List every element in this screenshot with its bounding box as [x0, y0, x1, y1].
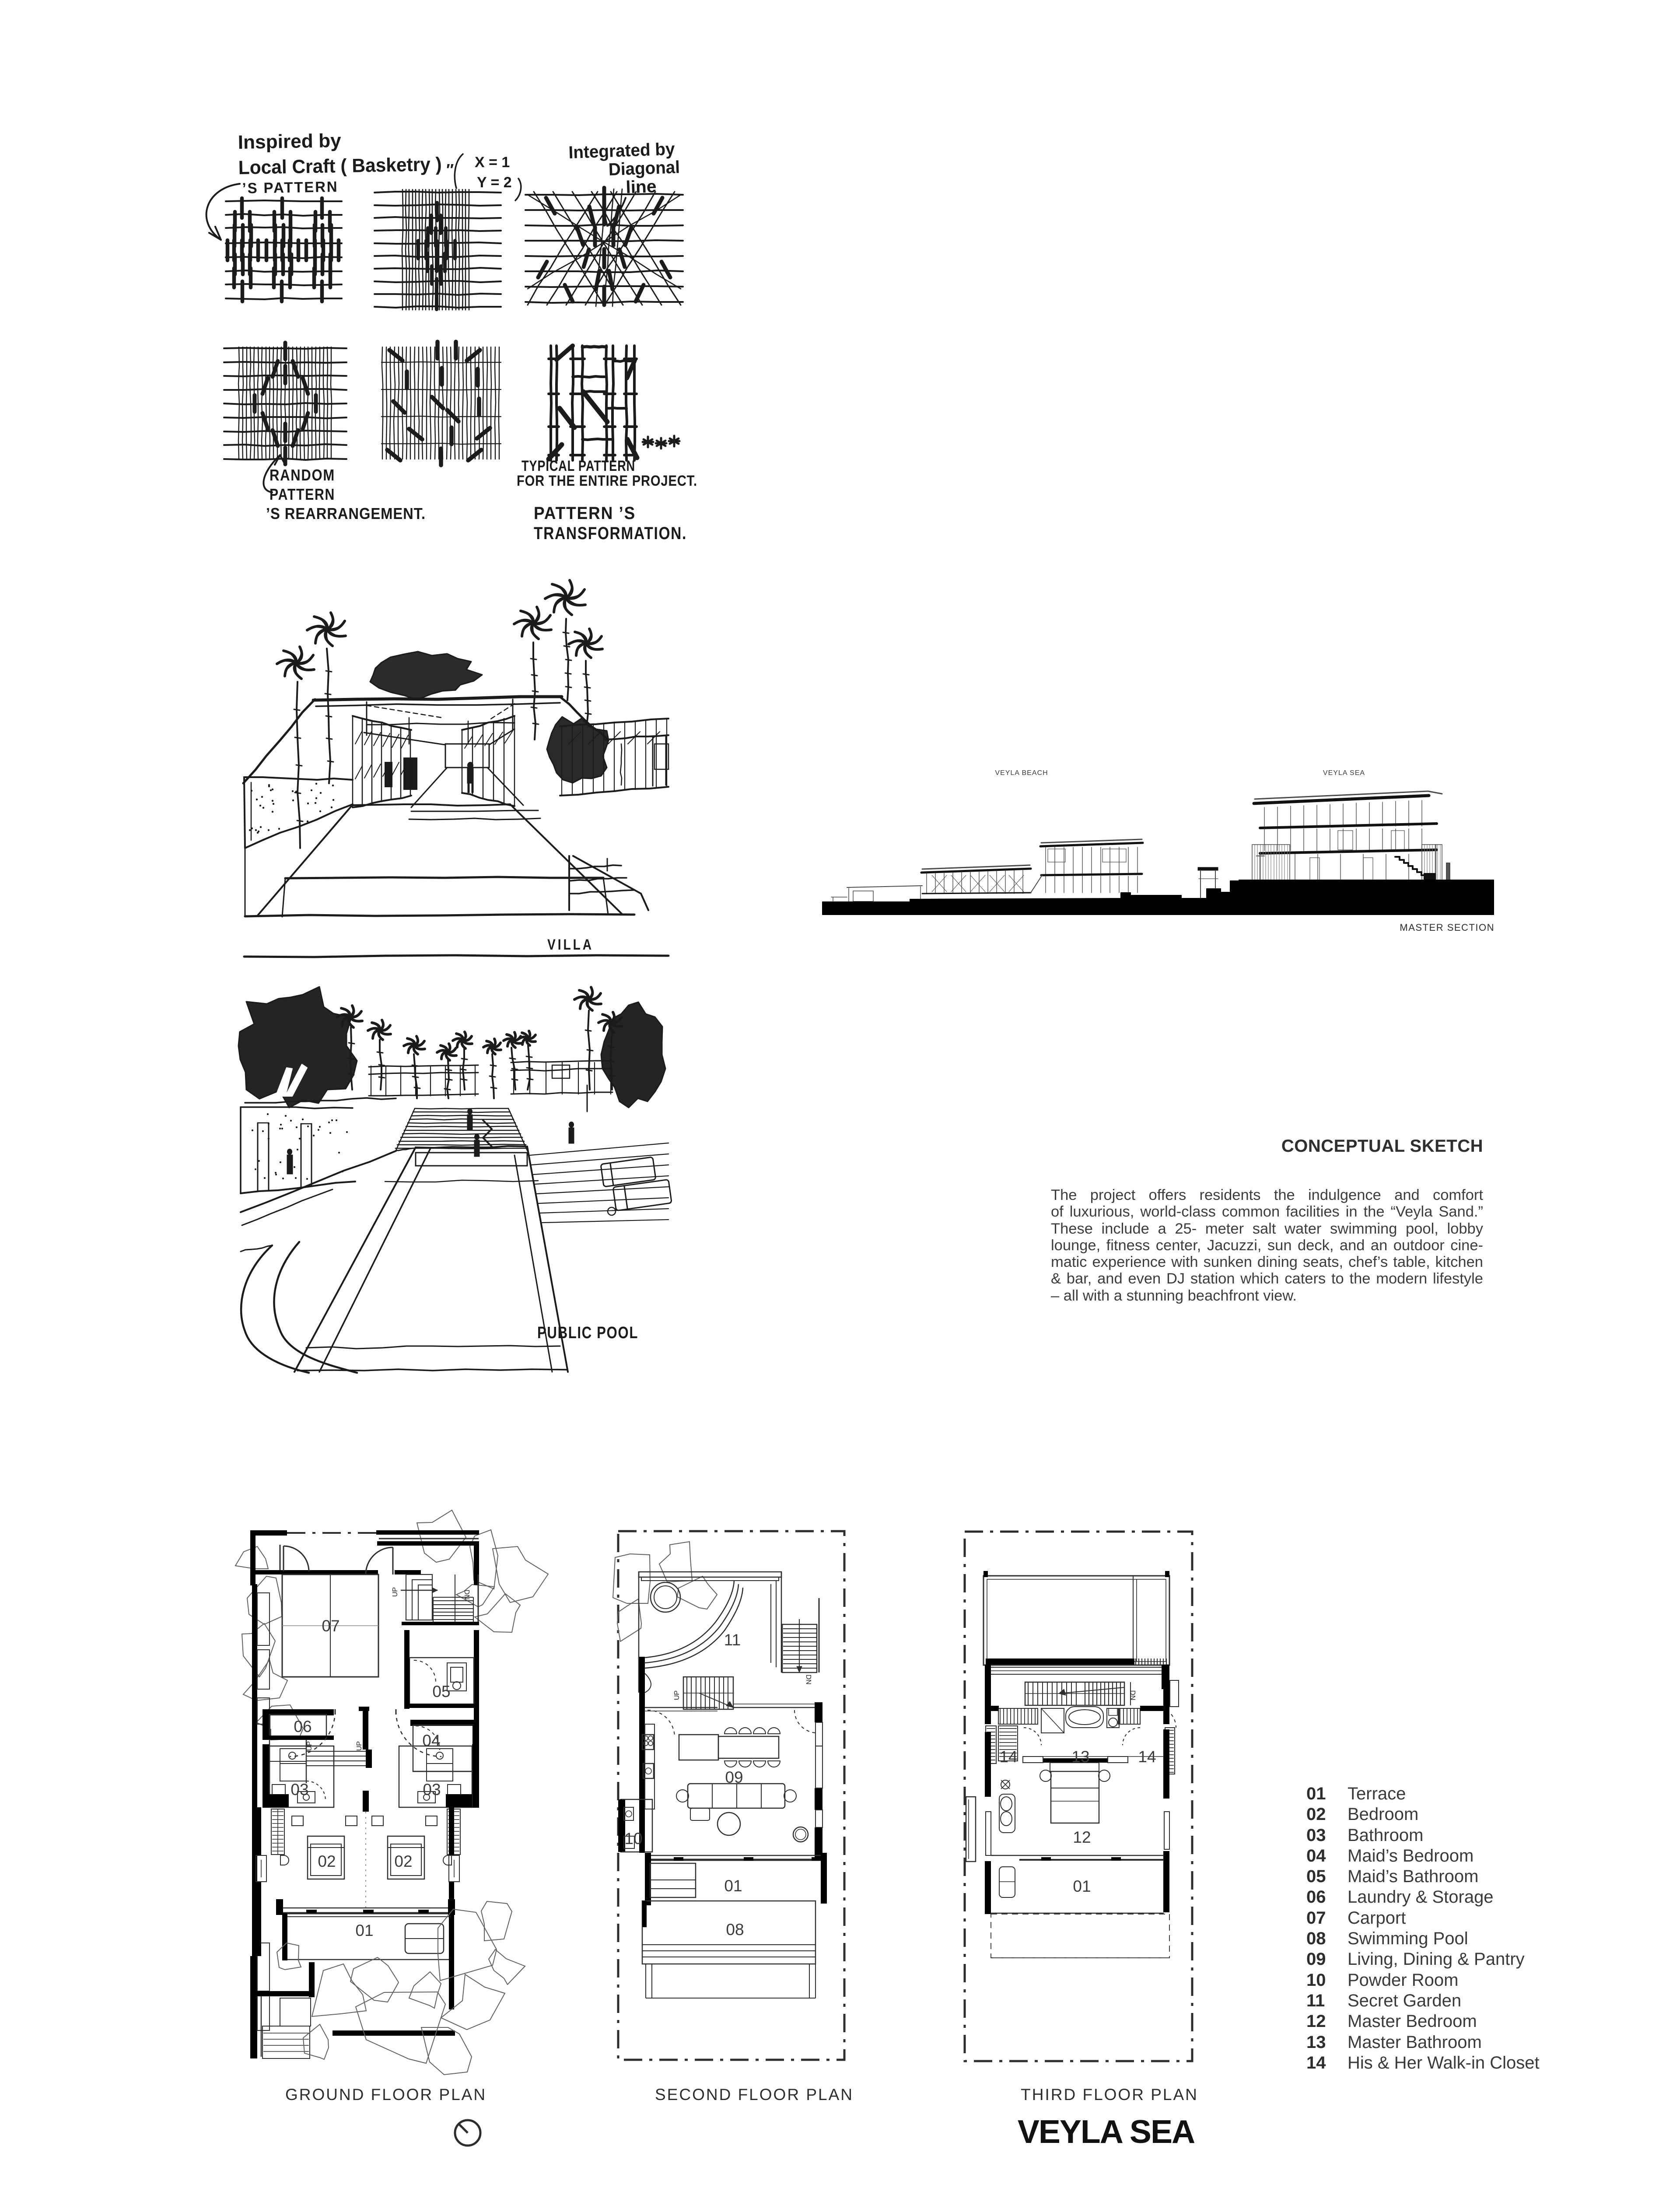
svg-text:10: 10	[624, 1830, 642, 1848]
svg-text:TRANSFORMATION.: TRANSFORMATION.	[534, 524, 687, 543]
svg-text:08: 08	[726, 1921, 744, 1939]
svg-text:DN: DN	[805, 1674, 812, 1684]
svg-text:01: 01	[724, 1877, 742, 1895]
svg-text:02: 02	[394, 1852, 412, 1870]
svg-text:14: 14	[999, 1748, 1017, 1766]
svg-text:VEYLA BEACH: VEYLA BEACH	[995, 769, 1048, 777]
svg-text:PATTERN: PATTERN	[269, 485, 335, 503]
svg-text:07: 07	[322, 1617, 339, 1635]
svg-text:05: 05	[432, 1683, 450, 1701]
svg-text:VILLA: VILLA	[547, 936, 594, 953]
svg-text:13: 13	[1071, 1748, 1089, 1766]
svg-text:Diagonal: Diagonal	[608, 158, 680, 179]
svg-text:line: line	[626, 177, 657, 197]
svg-text:06: 06	[294, 1718, 311, 1736]
svg-text:’S PATTERN: ’S PATTERN	[242, 179, 339, 197]
svg-text:TYPICAL PATTERN: TYPICAL PATTERN	[521, 458, 635, 474]
svg-text:PATTERN ’S: PATTERN ’S	[534, 504, 636, 523]
svg-text:RANDOM: RANDOM	[269, 466, 335, 484]
svg-text:FOR THE ENTIRE PROJECT.: FOR THE ENTIRE PROJECT.	[517, 473, 697, 489]
svg-text:01: 01	[1073, 1877, 1091, 1895]
svg-text:Y = 2: Y = 2	[477, 174, 512, 191]
svg-text:’S REARRANGEMENT.: ’S REARRANGEMENT.	[266, 505, 426, 522]
svg-text:UP: UP	[356, 1741, 363, 1751]
svg-text:′′: ′′	[446, 161, 454, 179]
svg-text:DN: DN	[1129, 1690, 1136, 1700]
svg-text:DN: DN	[463, 1589, 470, 1599]
svg-text:12: 12	[1073, 1828, 1091, 1846]
svg-text:UP: UP	[392, 1587, 399, 1597]
svg-text:Inspired by: Inspired by	[238, 130, 341, 153]
svg-text:14: 14	[1138, 1748, 1156, 1766]
svg-text:MASTER SECTION: MASTER SECTION	[1400, 922, 1494, 933]
svg-text:04: 04	[422, 1732, 440, 1750]
svg-text:VEYLA SEA: VEYLA SEA	[1323, 769, 1365, 777]
svg-text:03: 03	[423, 1781, 441, 1799]
svg-text:11: 11	[724, 1631, 741, 1649]
svg-text:PUBLIC POOL: PUBLIC POOL	[537, 1324, 638, 1342]
svg-text:03: 03	[290, 1781, 308, 1799]
svg-text:01: 01	[355, 1922, 373, 1939]
svg-text:02: 02	[318, 1852, 336, 1870]
svg-text:UP: UP	[673, 1690, 681, 1700]
svg-text:Local Craft ( Basketry ): Local Craft ( Basketry )	[238, 154, 442, 179]
svg-text:X = 1: X = 1	[475, 154, 510, 171]
svg-text:09: 09	[725, 1768, 743, 1786]
